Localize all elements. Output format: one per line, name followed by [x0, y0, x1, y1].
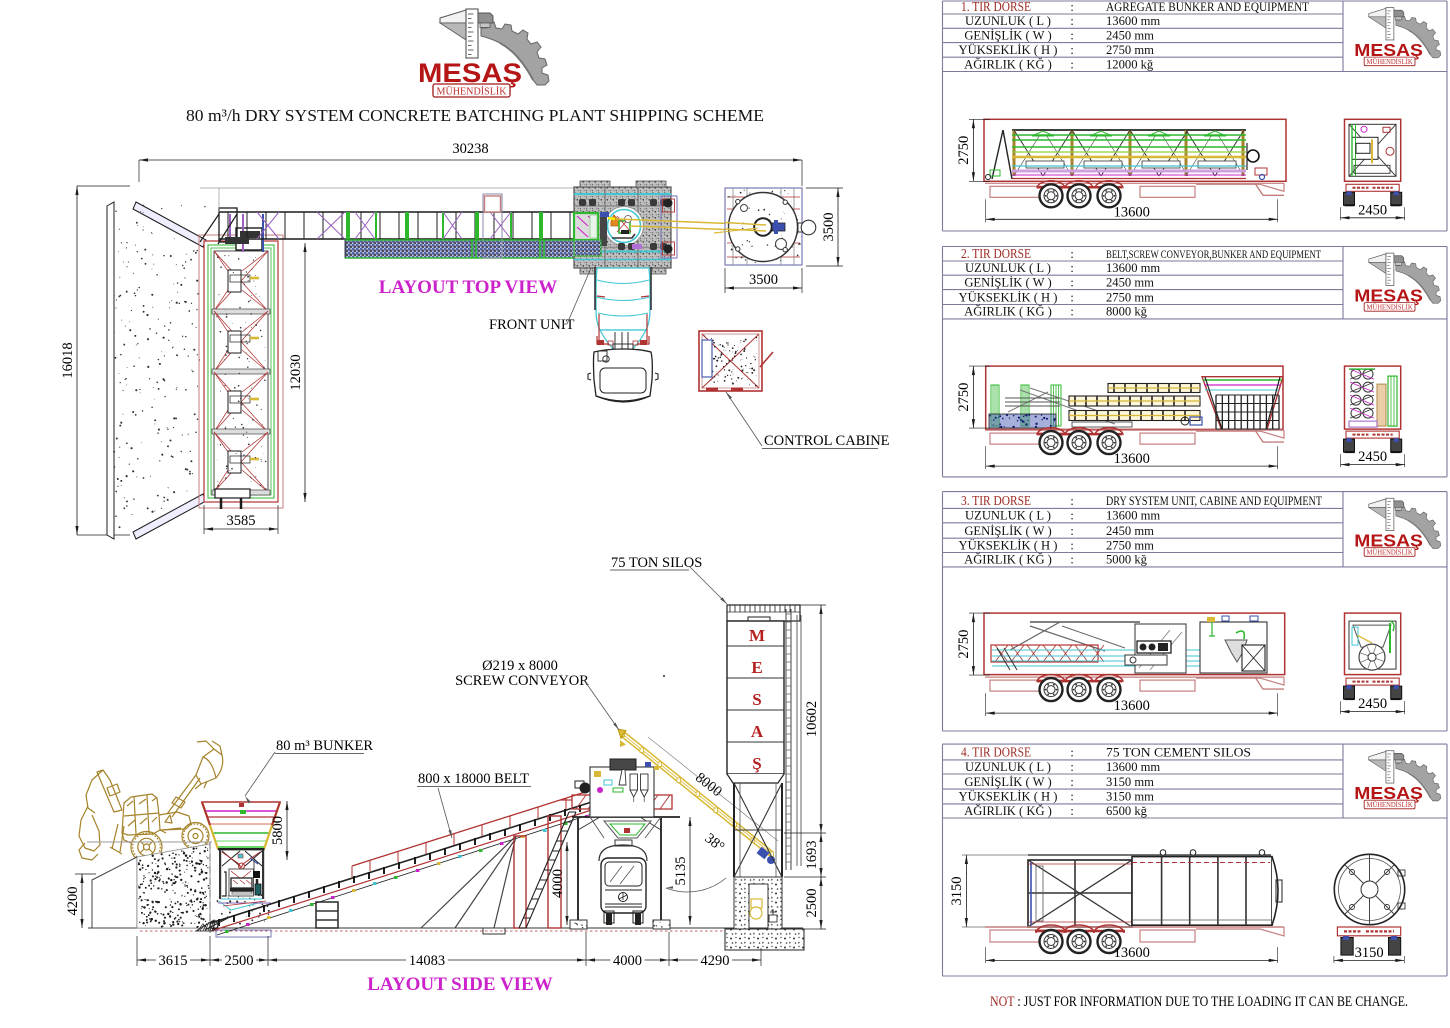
- svg-text:M: M: [749, 626, 765, 645]
- svg-text:UZUNLUK ( L ): UZUNLUK ( L ): [965, 261, 1051, 275]
- svg-text:2750: 2750: [956, 630, 972, 659]
- svg-text::: :: [1070, 508, 1074, 523]
- svg-text:1693: 1693: [804, 841, 820, 870]
- svg-text::: :: [1070, 493, 1074, 508]
- svg-text:3. TIR DORSE: 3. TIR DORSE: [961, 493, 1031, 508]
- svg-text::: :: [1070, 803, 1074, 818]
- svg-text:2750 mm: 2750 mm: [1106, 290, 1154, 304]
- svg-text::: :: [1070, 552, 1074, 567]
- svg-text:16018: 16018: [60, 342, 76, 378]
- svg-text::: :: [1070, 759, 1074, 774]
- svg-text:2500: 2500: [804, 889, 820, 918]
- svg-text:YÜKSEKLİK ( H ): YÜKSEKLİK ( H ): [959, 538, 1058, 552]
- svg-text:AGREGATE BUNKER AND EQUIPMENT: AGREGATE BUNKER AND EQUIPMENT: [1106, 0, 1309, 14]
- svg-text:5135: 5135: [673, 857, 689, 886]
- svg-text:3500: 3500: [749, 272, 778, 288]
- svg-text::: :: [1070, 246, 1074, 261]
- svg-text:LAYOUT SIDE VIEW: LAYOUT SIDE VIEW: [367, 974, 553, 995]
- svg-text:80 m³/h DRY SYSTEM CONCRETE BA: 80 m³/h DRY SYSTEM CONCRETE BATCHING PLA…: [186, 106, 764, 125]
- svg-text::: :: [1070, 56, 1074, 71]
- svg-text:GENİŞLİK ( W ): GENİŞLİK ( W ): [964, 775, 1051, 789]
- svg-text:2750: 2750: [956, 136, 972, 165]
- svg-text:13600: 13600: [1114, 945, 1150, 961]
- svg-text:800 x 18000 BELT: 800 x 18000 BELT: [418, 771, 529, 787]
- svg-text:GENİŞLİK ( W ): GENİŞLİK ( W ): [964, 28, 1051, 42]
- svg-text:2450 mm: 2450 mm: [1106, 28, 1154, 42]
- svg-text:YÜKSEKLİK ( H ): YÜKSEKLİK ( H ): [959, 43, 1058, 57]
- svg-text::: :: [1070, 260, 1074, 275]
- svg-text:SCREW CONVEYOR: SCREW CONVEYOR: [455, 673, 589, 689]
- svg-text:10602: 10602: [804, 701, 820, 737]
- svg-text:3585: 3585: [227, 513, 256, 529]
- svg-text:S: S: [752, 690, 761, 709]
- svg-text:2750: 2750: [956, 383, 972, 412]
- svg-text::: :: [1070, 304, 1074, 319]
- svg-text:NOT : JUST FOR INFORMATION DUE: NOT : JUST FOR INFORMATION DUE TO THE LO…: [990, 994, 1408, 1010]
- svg-text:3500: 3500: [821, 213, 837, 242]
- svg-text::: :: [1070, 745, 1074, 760]
- svg-text:75 TON SILOS: 75 TON SILOS: [611, 555, 702, 571]
- svg-text:4. TIR DORSE: 4. TIR DORSE: [961, 745, 1031, 760]
- svg-text::: :: [1070, 27, 1074, 42]
- svg-text::: :: [1070, 789, 1074, 804]
- svg-text::: :: [1070, 289, 1074, 304]
- svg-text:AĞIRLIK ( KĞ ): AĞIRLIK ( KĞ ): [964, 804, 1052, 818]
- svg-text:BELT,SCREW CONVEYOR,BUNKER AND: BELT,SCREW CONVEYOR,BUNKER AND EQUIPMENT: [1106, 248, 1321, 261]
- svg-text:4290: 4290: [701, 953, 730, 969]
- svg-text:2450: 2450: [1358, 696, 1387, 712]
- svg-text:12030: 12030: [288, 354, 304, 390]
- svg-text:5800: 5800: [270, 816, 286, 845]
- svg-text:AĞIRLIK ( KĞ ): AĞIRLIK ( KĞ ): [964, 305, 1052, 319]
- svg-text::: :: [1070, 274, 1074, 289]
- svg-text::: :: [1070, 774, 1074, 789]
- svg-text:GENİŞLİK ( W ): GENİŞLİK ( W ): [964, 275, 1051, 289]
- svg-text:UZUNLUK ( L ): UZUNLUK ( L ): [965, 760, 1051, 774]
- svg-text:DRY SYSTEM UNIT, CABINE AND EQ: DRY SYSTEM UNIT, CABINE AND EQUIPMENT: [1106, 494, 1322, 508]
- svg-text:2450 mm: 2450 mm: [1106, 275, 1154, 289]
- svg-text:3615: 3615: [159, 953, 188, 969]
- svg-text::: :: [1070, 523, 1074, 538]
- svg-text:Ş: Ş: [752, 754, 761, 773]
- svg-text:4000: 4000: [550, 869, 566, 898]
- svg-text::: :: [1070, 537, 1074, 552]
- svg-text::: :: [1070, 42, 1074, 57]
- svg-text:13600 mm: 13600 mm: [1106, 261, 1160, 275]
- svg-text:3150: 3150: [949, 877, 965, 906]
- svg-text:E: E: [751, 658, 762, 677]
- svg-text:3150 mm: 3150 mm: [1106, 790, 1154, 804]
- svg-text:Ø219 x 8000: Ø219 x 8000: [482, 658, 558, 674]
- svg-text:2450 mm: 2450 mm: [1106, 524, 1154, 538]
- svg-text:80 m³ BUNKER: 80 m³ BUNKER: [276, 738, 373, 754]
- svg-text:2450: 2450: [1358, 202, 1387, 218]
- svg-text:13600 mm: 13600 mm: [1106, 14, 1160, 28]
- svg-text:30238: 30238: [452, 141, 488, 157]
- svg-text:2750 mm: 2750 mm: [1106, 43, 1154, 57]
- svg-text:13600 mm: 13600 mm: [1106, 760, 1160, 774]
- svg-text:2450: 2450: [1358, 449, 1387, 465]
- svg-text:4000: 4000: [613, 953, 642, 969]
- svg-text:13600 mm: 13600 mm: [1106, 509, 1160, 523]
- svg-text:FRONT UNIT: FRONT UNIT: [489, 317, 575, 333]
- svg-text:UZUNLUK ( L ): UZUNLUK ( L ): [965, 509, 1051, 523]
- svg-text:UZUNLUK ( L ): UZUNLUK ( L ): [965, 14, 1051, 28]
- svg-text::: :: [1070, 0, 1074, 14]
- svg-text:3150: 3150: [1355, 945, 1384, 961]
- svg-text:YÜKSEKLİK ( H ): YÜKSEKLİK ( H ): [959, 790, 1058, 804]
- svg-text:13600: 13600: [1114, 698, 1150, 714]
- svg-text:13600: 13600: [1114, 204, 1150, 220]
- svg-text:5000 kğ: 5000 kğ: [1106, 553, 1148, 567]
- svg-text:LAYOUT TOP VIEW: LAYOUT TOP VIEW: [379, 277, 557, 298]
- svg-text:2500: 2500: [225, 953, 254, 969]
- svg-text:2750 mm: 2750 mm: [1106, 538, 1154, 552]
- svg-text:YÜKSEKLİK ( H ): YÜKSEKLİK ( H ): [959, 290, 1058, 304]
- svg-text:8000 kğ: 8000 kğ: [1106, 305, 1148, 319]
- svg-text:6500 kğ: 6500 kğ: [1106, 804, 1148, 818]
- svg-text:13600: 13600: [1114, 451, 1150, 467]
- svg-text:12000 kğ: 12000 kğ: [1106, 57, 1154, 71]
- svg-text:4200: 4200: [65, 887, 81, 916]
- svg-text:GENİŞLİK ( W ): GENİŞLİK ( W ): [964, 524, 1051, 538]
- svg-text:2. TIR DORSE: 2. TIR DORSE: [961, 246, 1031, 261]
- svg-text:CONTROL CABINE: CONTROL CABINE: [764, 433, 890, 449]
- svg-text::: :: [1070, 13, 1074, 28]
- svg-text:AĞIRLIK ( KĞ ): AĞIRLIK ( KĞ ): [964, 57, 1052, 71]
- svg-text:AĞIRLIK ( KĞ ): AĞIRLIK ( KĞ ): [964, 553, 1052, 567]
- svg-text:A: A: [751, 722, 764, 741]
- svg-text:14083: 14083: [409, 953, 445, 969]
- svg-text:75 TON CEMENT SILOS: 75 TON CEMENT SILOS: [1106, 745, 1251, 760]
- svg-text:3150 mm: 3150 mm: [1106, 775, 1154, 789]
- svg-text:1. TIR DORSE: 1. TIR DORSE: [961, 0, 1031, 14]
